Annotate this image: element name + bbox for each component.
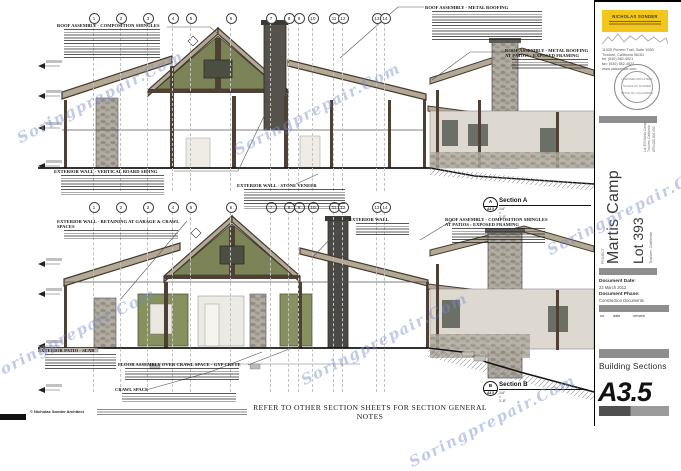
grid-bubble: 4 (168, 202, 179, 213)
project-name: Martis Camp (605, 170, 623, 264)
sheet-edge-mark (0, 414, 26, 420)
grid-line (230, 23, 231, 191)
grid-bubble: 10 (308, 13, 319, 24)
architect-stamp: LICENSED ARCHITECT NICHOLAS SONDER STATE… (614, 64, 660, 110)
section-a-scale: 1/4" = 1'-0" (499, 207, 506, 219)
detail-callout-b: B A3.5 (483, 381, 498, 396)
detail-callout-a: A A3.5 (483, 197, 498, 212)
grid-line (384, 212, 385, 392)
grid-line (376, 212, 377, 392)
rev-date-header: date (613, 314, 620, 318)
doc-date-label: Document Date: (599, 279, 636, 284)
grid-line (384, 23, 385, 191)
grid-bubble: 7 (266, 13, 277, 24)
divider-bar (599, 268, 657, 275)
note-wall-retaining: EXTERIOR WALL - RETAINING AT GARAGE & CR… (57, 219, 189, 239)
title-block: NICHOLAS SONDER 11025 Pioneer Trail, Sui… (594, 0, 681, 426)
note-wall-stone: EXTERIOR WALL - STONE VENEER (237, 183, 355, 209)
firm-tagline (609, 21, 661, 26)
sheet: { "watermark": { "text": "Soringprepair.… (0, 0, 681, 424)
firm-name: NICHOLAS SONDER (602, 10, 668, 19)
grid-line (342, 212, 343, 392)
sheet-number: A3.5 (598, 377, 651, 408)
grid-line (333, 212, 334, 392)
firm-logo: NICHOLAS SONDER (602, 10, 668, 32)
project-sub: Truckee, California (649, 232, 653, 264)
grid-line (342, 23, 343, 191)
note-heading: ROOF ASSEMBLY - COMPOSITION SHINGLES (57, 23, 169, 28)
note-wall-siding: EXTERIOR WALL - VERTICAL BOARD SIDING (54, 169, 174, 195)
note-roof-metal-patio: ROOF ASSEMBLY - METAL ROOFING AT PATIOS … (505, 48, 593, 69)
sheet-title: Building Sections (599, 361, 667, 371)
grid-line (333, 23, 334, 191)
grid-line (270, 23, 271, 191)
grid-line (172, 23, 173, 191)
grid-bubble: 12 (338, 13, 349, 24)
rev-remark-header: remark (633, 314, 645, 318)
divider-bar (599, 406, 669, 416)
grid-line (288, 23, 289, 191)
grid-bubble: 6 (226, 13, 237, 24)
doc-phase-label: Document Phase: (599, 292, 640, 297)
note-roof-composition: ROOF ASSEMBLY - COMPOSITION SHINGLES (57, 23, 169, 59)
grid-line (298, 23, 299, 191)
grid-bubble: 8 (284, 13, 295, 24)
copyright: © Nicholas Sonder Architect (30, 409, 84, 414)
grid-bubble: 6 (226, 202, 237, 213)
note-bullets (64, 29, 160, 59)
grid-line (270, 212, 271, 392)
note-wall-plain: EXTERIOR WALL (349, 217, 411, 237)
doc-date: 23 March 2012 (599, 285, 626, 290)
grid-bubble: 4 (168, 13, 179, 24)
rev-no-header: no. (600, 314, 605, 318)
divider-bar (599, 305, 669, 312)
note-crawl-space: CRAWL SPACE (115, 387, 247, 402)
grid-bubble: 5 (186, 202, 197, 213)
grid-line (298, 212, 299, 392)
grid-line (288, 212, 289, 392)
site-info: Lot 393 Martis Camp Truckee, California … (643, 122, 656, 152)
grid-line (376, 23, 377, 191)
grid-bubble: 3 (143, 202, 154, 213)
note-floor-crawl: FLOOR ASSEMBLY OVER CRAWL SPACE - GYP CR… (118, 362, 250, 382)
grid-bubble: 14 (380, 202, 391, 213)
grid-bubble: 14 (380, 13, 391, 24)
copyright-fine-print (97, 409, 247, 417)
grid-bubble: 1 (89, 202, 100, 213)
project-lot: Lot 393 (630, 217, 646, 264)
grid-line (312, 212, 313, 392)
grid-bubble: 2 (116, 202, 127, 213)
grid-bubble: 5 (186, 13, 197, 24)
note-roof-metal: ROOF ASSEMBLY - METAL ROOFING (425, 5, 553, 41)
grid-line (190, 23, 191, 191)
footer-note: REFER TO OTHER SECTION SHEETS FOR SECTIO… (245, 403, 495, 421)
note-patio-slab: EXTERIOR PATIO - SLAB (38, 348, 120, 369)
note-roof-comp-patio: ROOF ASSEMBLY - COMPOSITION SHINGLES AT … (445, 217, 553, 244)
divider-bar (599, 349, 669, 358)
grid-bubble: 9 (294, 13, 305, 24)
doc-phase: Construction Documents (599, 298, 644, 303)
skyline-graphic (602, 31, 668, 46)
section-b-scale: 1/4" = 1'-0" (499, 391, 506, 403)
grid-line (312, 23, 313, 191)
